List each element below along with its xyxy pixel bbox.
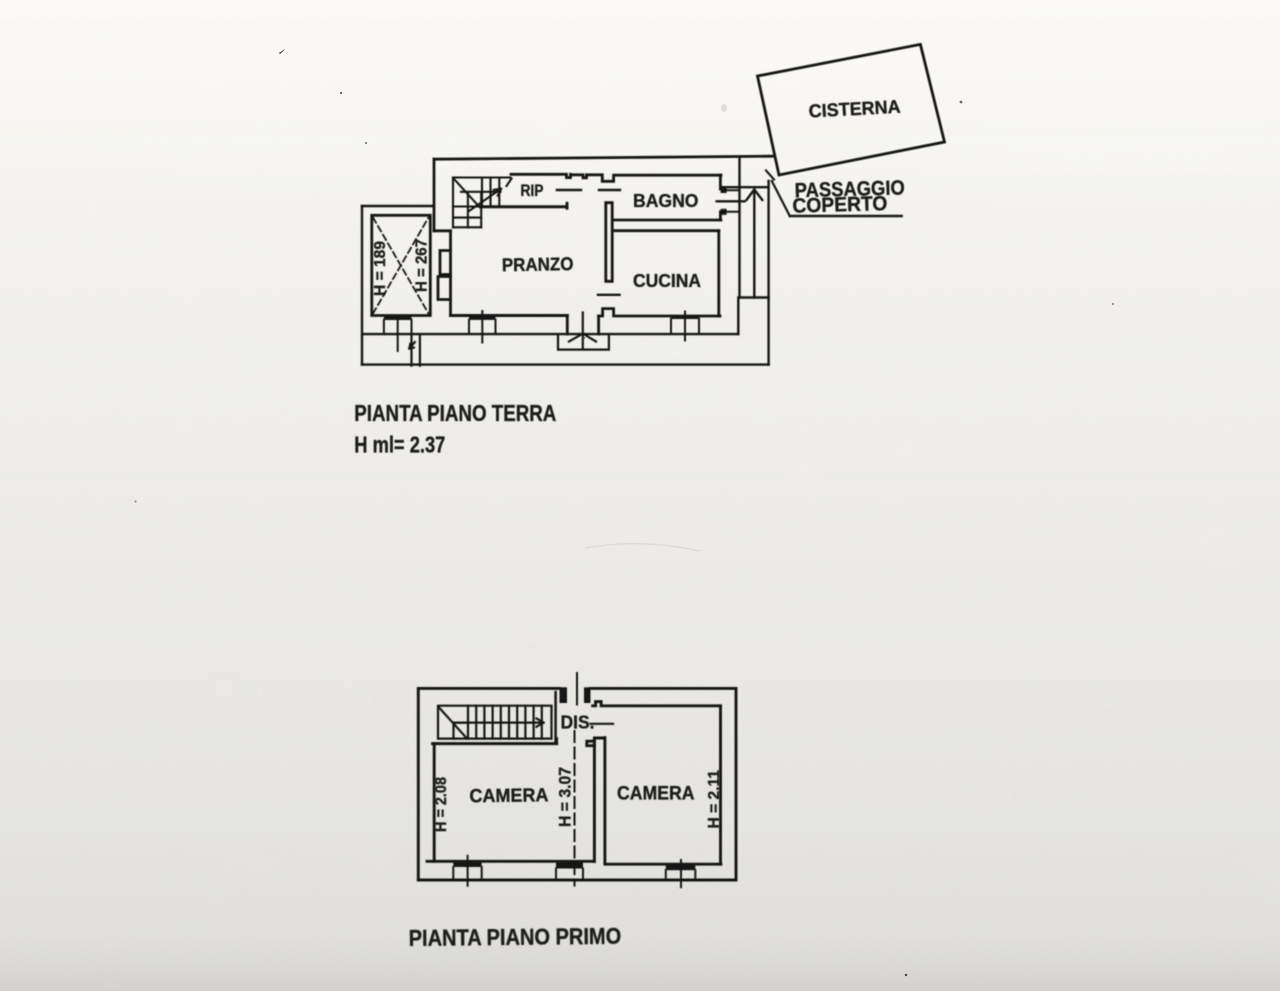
svg-text:CUCINA: CUCINA	[633, 270, 701, 291]
svg-text:CAMERA: CAMERA	[469, 785, 549, 807]
svg-text:H = 267: H = 267	[413, 239, 430, 292]
svg-text:H = 189: H = 189	[372, 241, 389, 296]
svg-text:COPERTO: COPERTO	[792, 192, 888, 217]
svg-text:DIS.: DIS.	[561, 713, 595, 733]
svg-text:H = 2.11: H = 2.11	[706, 770, 723, 829]
svg-text:H = 3.07: H = 3.07	[556, 767, 575, 827]
svg-text:H ml= 2.37: H ml= 2.37	[354, 432, 445, 458]
svg-text:CAMERA: CAMERA	[617, 783, 695, 804]
svg-text:PRANZO: PRANZO	[502, 253, 574, 275]
svg-text:RIP: RIP	[521, 181, 544, 200]
svg-text:PIANTA PIANO PRIMO: PIANTA PIANO PRIMO	[409, 923, 622, 951]
svg-text:BAGNO: BAGNO	[633, 190, 699, 211]
svg-text:PIANTA PIANO TERRA: PIANTA PIANO TERRA	[354, 400, 556, 426]
svg-text:H = 2.08: H = 2.08	[433, 777, 450, 832]
